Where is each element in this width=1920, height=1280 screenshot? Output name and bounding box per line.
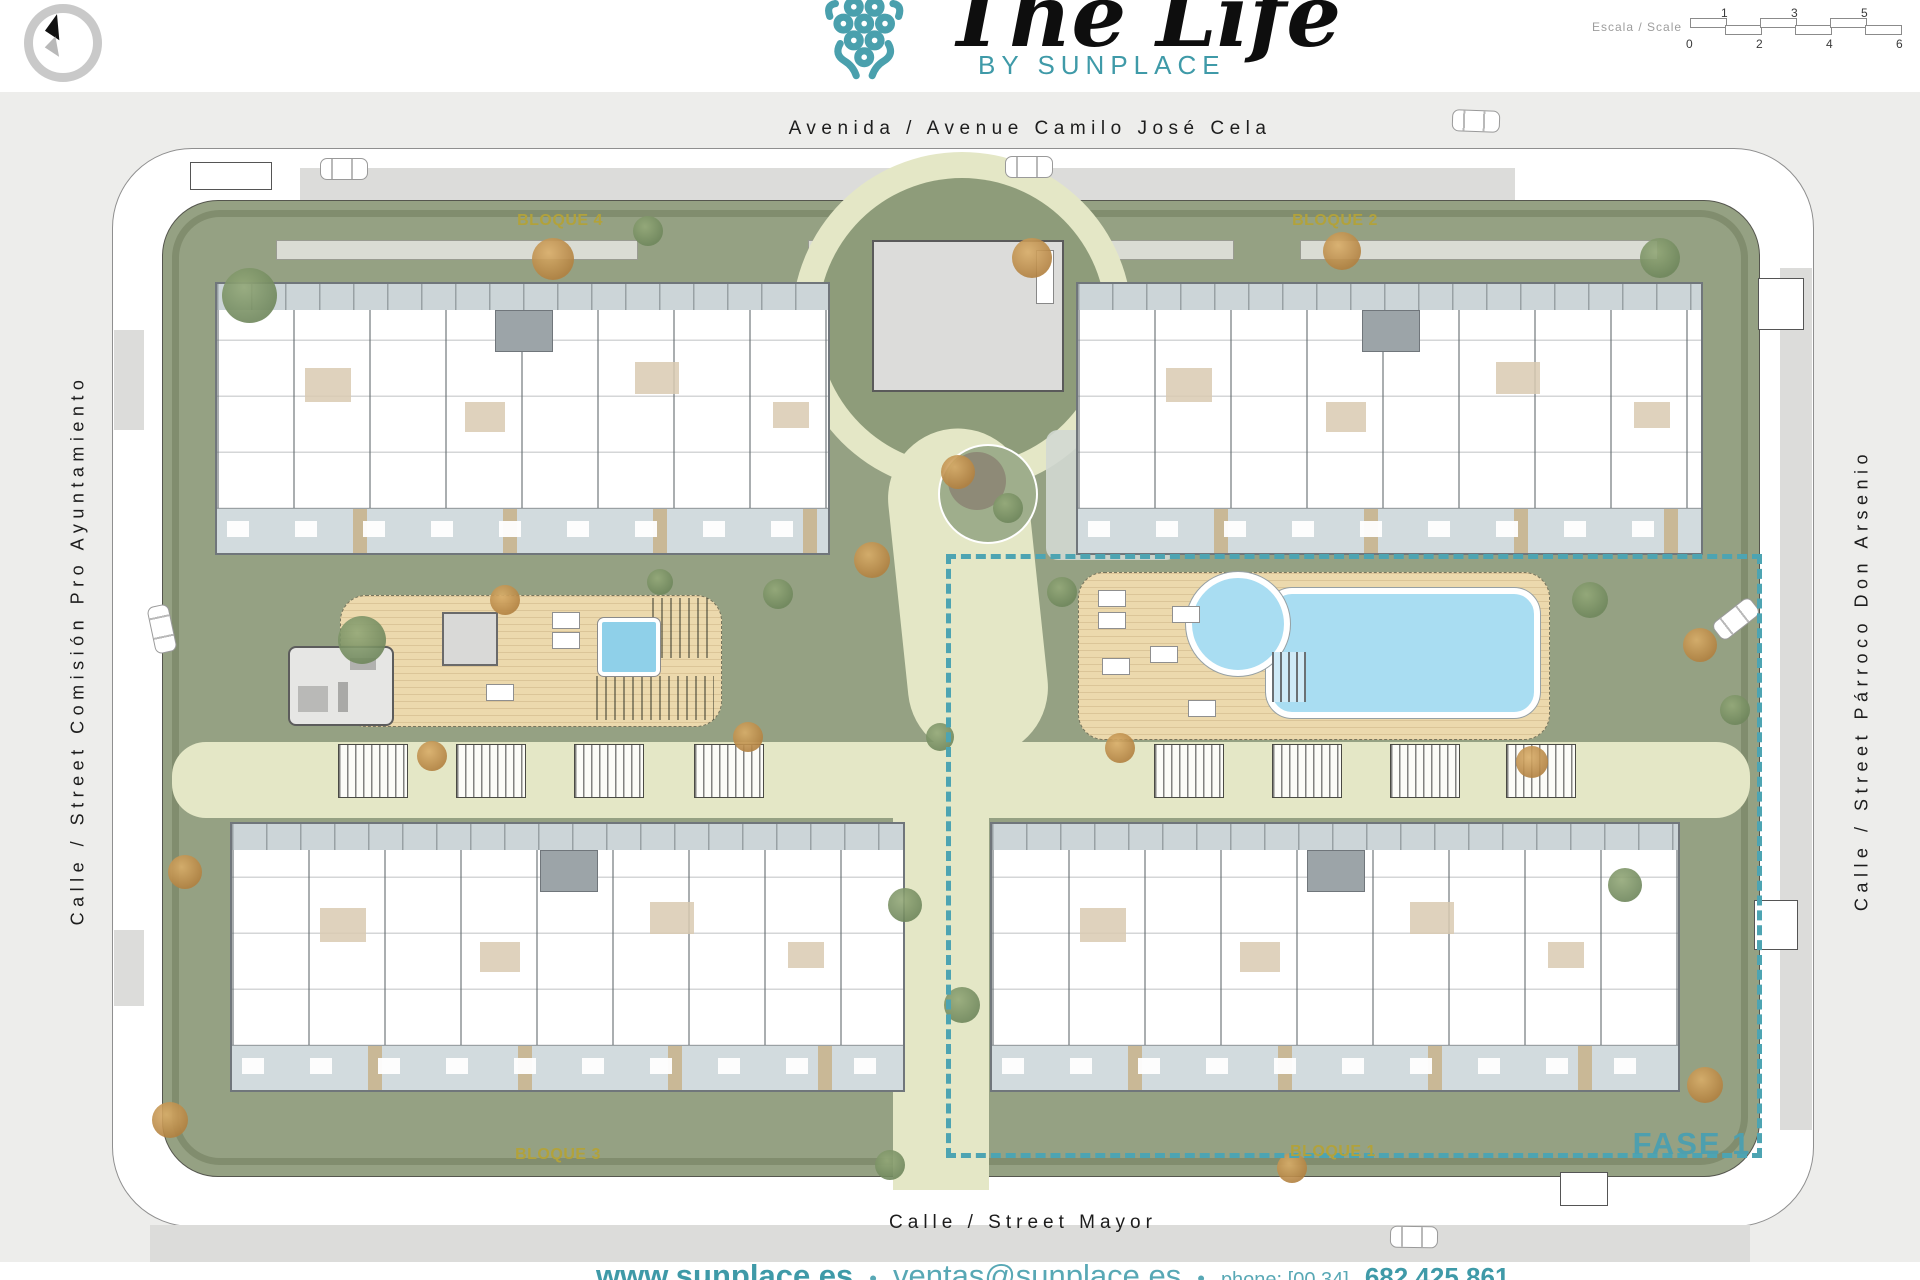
street-structure xyxy=(1758,278,1804,330)
tree xyxy=(152,1102,188,1138)
scale-tick: 1 xyxy=(1721,6,1728,20)
compass-icon xyxy=(24,4,102,82)
scale-label: Escala / Scale xyxy=(1592,20,1682,34)
tree xyxy=(733,722,763,752)
scale-bar: Escala / Scale 1 3 5 0 2 4 6 xyxy=(1592,6,1912,46)
tree xyxy=(647,569,673,595)
tree xyxy=(854,542,890,578)
street-label-right: Calle / Street Párroco Don Arsenio xyxy=(1852,449,1873,911)
tree xyxy=(222,268,277,323)
label-bloque-2: BLOQUE 2 xyxy=(1292,212,1378,230)
footer-separator: • xyxy=(1197,1266,1205,1280)
tree xyxy=(417,741,447,771)
terrace-loungers xyxy=(227,521,818,537)
label-bloque-3: BLOQUE 3 xyxy=(515,1146,601,1164)
scale-seg xyxy=(1865,25,1902,35)
footer-separator: • xyxy=(869,1266,877,1280)
footer-contact: www.sunplace.es • ventas@sunplace.es • p… xyxy=(596,1258,1509,1280)
tree xyxy=(1012,238,1052,278)
tree xyxy=(1323,232,1361,270)
sunplace-logo-icon xyxy=(790,0,940,82)
street-structure xyxy=(1560,1172,1608,1206)
scale-tick: 6 xyxy=(1896,37,1903,51)
tree xyxy=(993,493,1023,523)
footer-website-link[interactable]: www.sunplace.es xyxy=(596,1258,853,1280)
sidewalk-left xyxy=(114,330,144,430)
brand-subtitle: BY SUNPLACE xyxy=(978,50,1212,81)
scale-segments: 1 3 5 0 2 4 6 xyxy=(1690,18,1902,36)
terrace-band xyxy=(217,508,828,553)
tree xyxy=(490,585,520,615)
parking-pergola xyxy=(574,744,644,798)
terrace-loungers xyxy=(242,1058,893,1074)
deck-pattern xyxy=(596,676,714,720)
street-structure xyxy=(190,162,272,190)
car-icon xyxy=(1005,156,1053,178)
jacuzzi-pool xyxy=(598,618,660,676)
scale-seg xyxy=(1795,25,1832,35)
sidewalk-right xyxy=(1780,268,1812,1130)
scale-tick: 0 xyxy=(1686,37,1693,51)
sun-lounger xyxy=(552,632,580,649)
stair-core xyxy=(1362,310,1420,352)
corridor-band xyxy=(1078,284,1701,311)
gym-room xyxy=(288,646,394,726)
tree xyxy=(888,888,922,922)
header: The Life BY SUNPLACE Escala / Scale 1 3 … xyxy=(0,0,1920,92)
label-bloque-1: BLOQUE 1 xyxy=(1290,1143,1376,1161)
parking-pergola xyxy=(456,744,526,798)
scale-seg xyxy=(1725,25,1762,35)
scale-tick: 2 xyxy=(1756,37,1763,51)
tree xyxy=(633,216,663,246)
corridor-band xyxy=(232,824,903,851)
terrace-band xyxy=(1078,508,1701,553)
tree xyxy=(338,616,386,664)
deck-pavilion xyxy=(442,612,498,666)
tree xyxy=(875,1150,905,1180)
stair-core xyxy=(495,310,553,352)
tree xyxy=(532,238,574,280)
phase-1-boundary xyxy=(946,554,1762,1158)
deck-pattern xyxy=(652,598,714,658)
street-label-top: Avenida / Avenue Camilo José Cela xyxy=(789,118,1272,140)
corridor-band xyxy=(217,284,828,311)
tree xyxy=(1640,238,1680,278)
footer-phone-label: phone: [00 34] xyxy=(1221,1269,1349,1280)
footer-email-link[interactable]: ventas@sunplace.es xyxy=(893,1258,1181,1280)
sidewalk-left xyxy=(114,930,144,1006)
footer-phone-number: 682 425 861 xyxy=(1365,1262,1510,1280)
building-bloque-4 xyxy=(215,282,830,555)
scale-tick: 3 xyxy=(1791,6,1798,20)
tree xyxy=(168,855,202,889)
parking-pergola xyxy=(694,744,764,798)
terrace-band xyxy=(232,1045,903,1090)
terrace-loungers xyxy=(1088,521,1691,537)
street-label-left: Calle / Street Comisión Pro Ayuntamiento xyxy=(68,375,89,926)
scale-tick: 4 xyxy=(1826,37,1833,51)
tree xyxy=(941,455,975,489)
boundary-wall xyxy=(276,240,638,260)
stair-core xyxy=(540,850,598,892)
tree xyxy=(763,579,793,609)
parking-pergola xyxy=(338,744,408,798)
car-icon xyxy=(1452,109,1501,133)
building-bloque-2 xyxy=(1076,282,1703,555)
building-bloque-3 xyxy=(230,822,905,1092)
site-plan-page: The Life BY SUNPLACE Escala / Scale 1 3 … xyxy=(0,0,1920,1280)
car-icon xyxy=(1390,1226,1438,1249)
car-icon xyxy=(320,158,368,180)
sun-lounger xyxy=(552,612,580,629)
sun-lounger xyxy=(486,684,514,701)
street-label-bottom: Calle / Street Mayor xyxy=(889,1212,1157,1234)
scale-tick: 5 xyxy=(1861,6,1868,20)
label-bloque-4: BLOQUE 4 xyxy=(517,212,603,230)
label-fase-1: FASE 1 xyxy=(1633,1126,1752,1162)
